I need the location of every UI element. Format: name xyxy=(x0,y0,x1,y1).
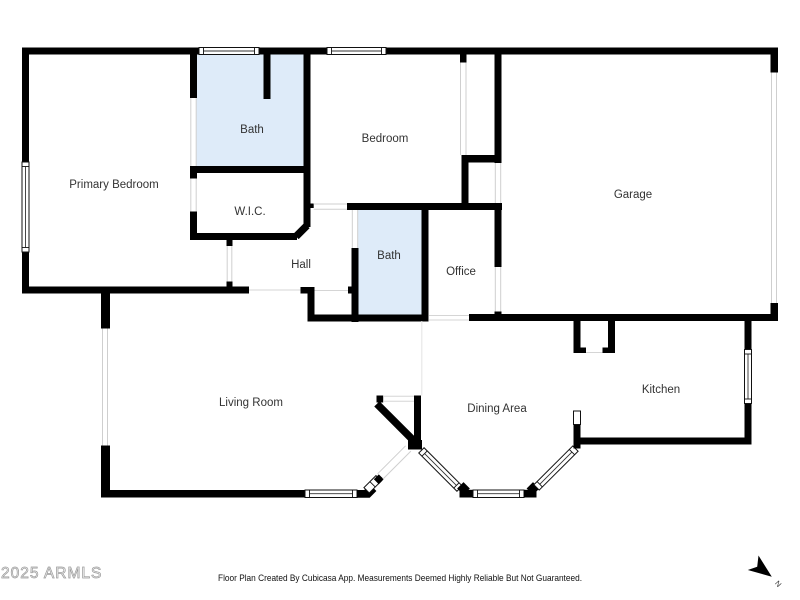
svg-text:Hall: Hall xyxy=(291,259,311,271)
svg-text:W.I.C.: W.I.C. xyxy=(234,206,265,218)
svg-text:Garage: Garage xyxy=(614,189,652,201)
svg-text:2025 ARMLS: 2025 ARMLS xyxy=(1,565,102,582)
svg-text:Floor Plan Created By Cubicasa: Floor Plan Created By Cubicasa App. Meas… xyxy=(218,572,582,583)
svg-text:Primary Bedroom: Primary Bedroom xyxy=(69,179,158,191)
svg-text:Dining Area: Dining Area xyxy=(467,403,527,415)
svg-text:Bedroom: Bedroom xyxy=(362,133,409,145)
svg-text:Living Room: Living Room xyxy=(219,397,283,409)
svg-text:Bath: Bath xyxy=(240,124,264,136)
svg-text:Bath: Bath xyxy=(377,250,401,262)
svg-text:Office: Office xyxy=(446,266,476,278)
svg-text:Kitchen: Kitchen xyxy=(642,384,680,396)
